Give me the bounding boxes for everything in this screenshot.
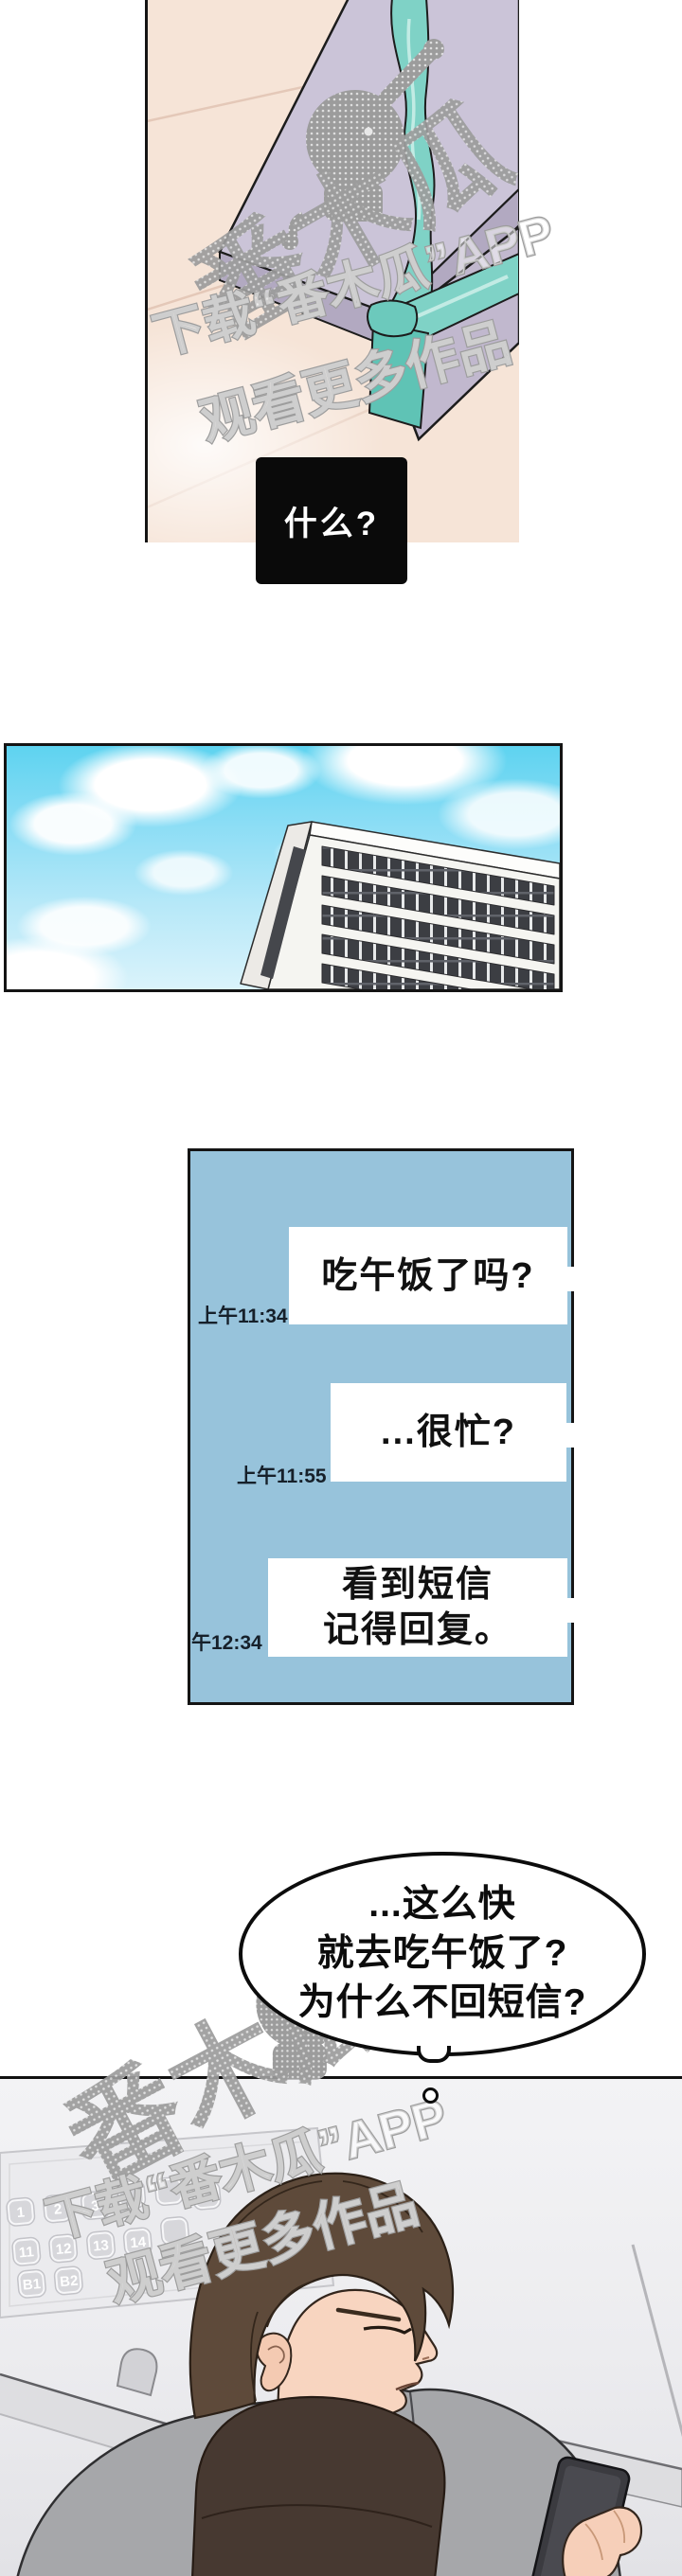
gift-ribbon-knot <box>368 300 417 336</box>
message-timestamp: 上午11:34 <box>198 1301 288 1329</box>
bubble-tail <box>565 1598 578 1623</box>
elevator-button <box>117 2180 145 2208</box>
message-bubble: ...很忙? <box>331 1383 566 1482</box>
elevator-button: B2 <box>55 2266 82 2294</box>
elevator-button <box>161 2217 188 2245</box>
thought-trail-dot <box>422 2087 439 2104</box>
elevator-button: 12 <box>49 2234 77 2262</box>
thought-bubble: ...这么快 就去吃午饭了? 为什么不回短信? <box>239 1852 646 2056</box>
elevator-button: 11 <box>12 2238 40 2265</box>
elevator-button: 6 <box>193 2181 221 2209</box>
message-text: 吃午饭了吗? <box>321 1253 534 1299</box>
bubble-tail <box>565 1267 578 1291</box>
caption-text: 什么? <box>284 497 379 545</box>
elevator-button: 2 <box>44 2194 71 2222</box>
comic-page: 番木瓜 下载“番木瓜”APP 观看更多作品 什么? 吃午饭了吗? <box>0 0 682 2576</box>
message-bubble: 看到短信 记得回复。 <box>268 1558 567 1657</box>
panel-elevator: 1 2 3 6 11 12 13 14 B1 B2 <box>0 2076 682 2576</box>
message-bubble: 吃午饭了吗? <box>289 1227 567 1324</box>
building-illustration <box>7 746 560 989</box>
message-timestamp: 午12:34 <box>191 1627 262 1656</box>
elevator-button: B1 <box>18 2270 45 2298</box>
message-text: ...很忙? <box>381 1410 516 1455</box>
thought-line: 就去吃午饭了? <box>317 1929 568 1979</box>
message-timestamp: 上午11:55 <box>237 1461 327 1489</box>
caption-box: 什么? <box>256 457 407 584</box>
elevator-button: 3 <box>81 2192 109 2219</box>
thought-line: ...这么快 <box>368 1880 516 1929</box>
message-text: 看到短信 <box>342 1562 494 1608</box>
elevator-button: 14 <box>124 2228 152 2255</box>
message-text: 记得回复。 <box>323 1608 512 1653</box>
elevator-button: 1 <box>7 2198 34 2226</box>
turtleneck <box>192 2397 444 2576</box>
elevator-scene <box>0 2079 682 2576</box>
bubble-tail <box>565 1423 577 1448</box>
elevator-button <box>155 2177 183 2205</box>
panel-messages: 吃午饭了吗? 上午11:34 ...很忙? 上午11:55 看到短信 记得回复。… <box>188 1148 574 1705</box>
thought-bubble-notch <box>417 2046 451 2063</box>
thought-line: 为什么不回短信? <box>298 1979 587 2028</box>
panel-sky-building <box>4 743 563 992</box>
gift-ribbon-side <box>369 322 428 428</box>
handrail-mount <box>117 2349 156 2395</box>
elevator-button: 13 <box>87 2231 115 2259</box>
